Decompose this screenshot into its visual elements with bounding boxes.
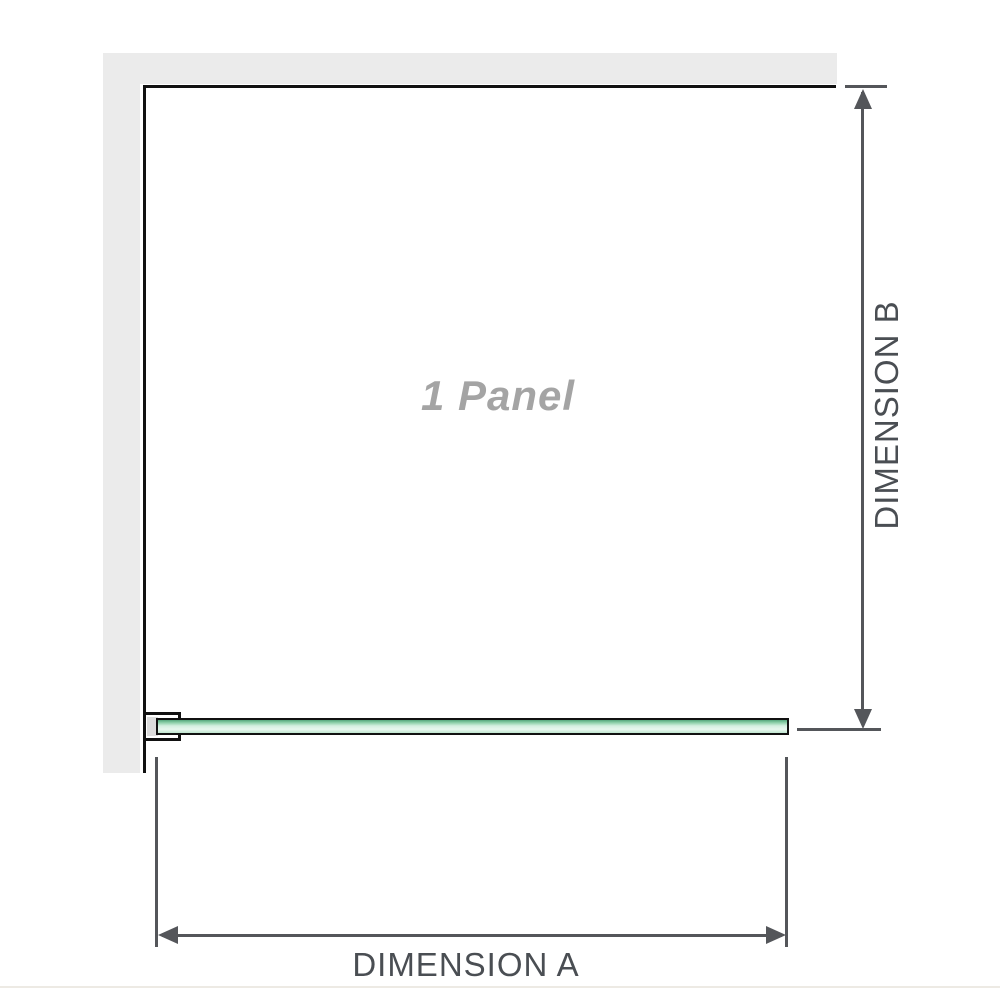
glass-panel-bar xyxy=(156,718,789,735)
panel-label: 1 Panel xyxy=(348,372,648,424)
dimension-b-top-tick xyxy=(845,85,887,88)
panel-outline xyxy=(143,85,836,773)
dimension-b-label: DIMENSION B xyxy=(869,290,905,540)
footer-rule xyxy=(0,986,1000,988)
dimension-a-right-extension xyxy=(785,757,788,947)
dimension-b-line xyxy=(861,92,864,714)
panel-dimension-diagram: 1 Panel DIMENSION B DIMENSION A xyxy=(0,0,1000,1000)
arrow-right-icon xyxy=(766,926,786,944)
arrow-down-icon xyxy=(854,709,872,729)
arrow-left-icon xyxy=(158,926,178,944)
dimension-a-left-extension xyxy=(155,757,158,947)
dimension-a-label: DIMENSION A xyxy=(340,948,592,982)
wall-top-bar xyxy=(103,53,837,84)
arrow-up-icon xyxy=(854,89,872,109)
wall-left-bar xyxy=(103,53,140,773)
dimension-a-line xyxy=(162,934,782,937)
